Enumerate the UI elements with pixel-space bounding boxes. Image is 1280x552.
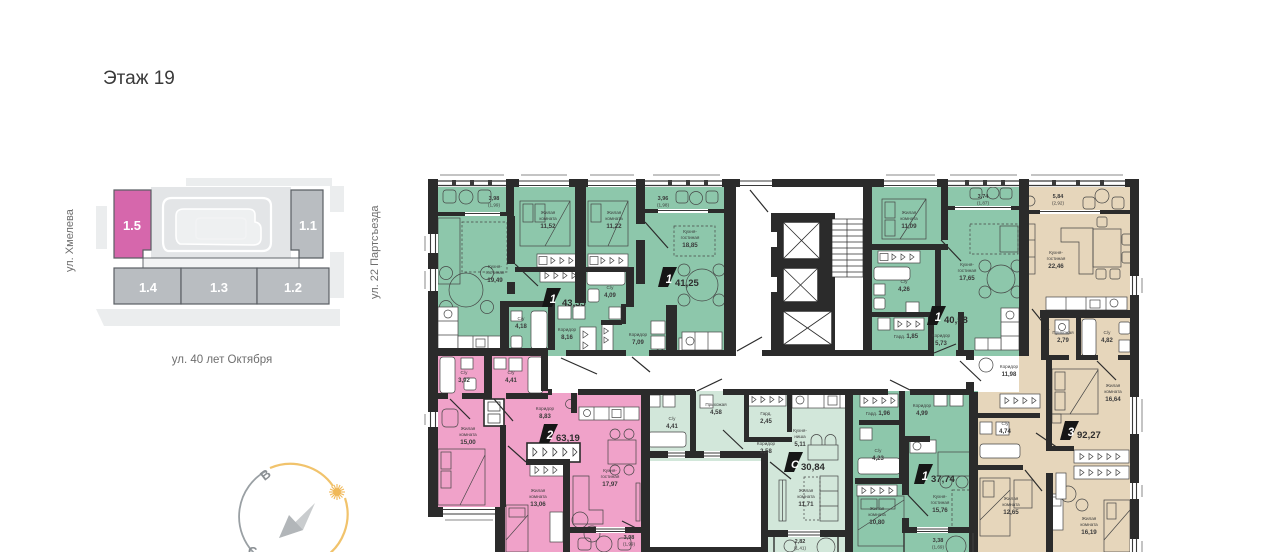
svg-text:2,82: 2,82 [795,539,806,545]
svg-text:3,74: 3,74 [978,194,990,200]
svg-text:37,74: 37,74 [931,474,955,485]
svg-text:Кухня-: Кухня- [488,264,502,269]
svg-text:Прихожая: Прихожая [705,402,727,407]
svg-text:Жилая: Жилая [1082,516,1097,521]
svg-text:Этаж 19: Этаж 19 [103,68,175,89]
svg-text:17,97: 17,97 [602,481,618,488]
svg-text:(1,98): (1,98) [657,203,669,208]
svg-text:41,25: 41,25 [675,278,699,289]
svg-text:8,83: 8,83 [539,414,551,420]
svg-text:Коридор: Коридор [913,403,932,408]
svg-text:С/у: С/у [1002,421,1010,426]
svg-text:1: 1 [935,312,941,324]
svg-text:4,74: 4,74 [999,429,1011,435]
svg-text:ниша: ниша [794,434,806,439]
svg-text:комната: комната [1002,502,1020,507]
svg-text:11,71: 11,71 [798,501,814,508]
svg-text:Коридор: Коридор [536,406,555,411]
svg-text:63,19: 63,19 [556,433,580,444]
svg-text:7,09: 7,09 [632,340,644,346]
svg-text:1: 1 [550,294,556,306]
svg-text:40,58: 40,58 [944,315,968,326]
svg-text:12,65: 12,65 [1003,509,1019,516]
svg-text:1.4: 1.4 [139,280,158,295]
svg-text:(1,99): (1,99) [623,542,635,547]
svg-text:комната: комната [797,494,815,499]
svg-text:Коридор: Коридор [629,332,648,337]
svg-text:комната: комната [529,494,547,499]
svg-text:Кухня-: Кухня- [683,229,697,234]
svg-text:гостиная: гостиная [601,474,620,479]
svg-text:13,06: 13,06 [530,501,546,508]
svg-text:С/у: С/у [461,370,469,375]
svg-text:С/у: С/у [901,279,909,284]
svg-text:19,49: 19,49 [487,277,503,284]
svg-text:3,92: 3,92 [458,378,470,384]
svg-text:3,96: 3,96 [658,196,669,202]
svg-text:комната: комната [1104,389,1122,394]
svg-text:Коридор: Коридор [932,333,951,338]
svg-text:Жилая: Жилая [902,210,917,215]
svg-text:2,45: 2,45 [760,419,772,425]
svg-text:2,79: 2,79 [1057,338,1069,344]
svg-text:ул. 40 лет Октября: ул. 40 лет Октября [172,354,272,366]
svg-text:С/у: С/у [607,285,615,290]
svg-text:комната: комната [459,432,477,437]
svg-text:(1,99): (1,99) [488,203,500,208]
svg-text:15,76: 15,76 [932,507,948,514]
svg-text:30,84: 30,84 [801,462,825,473]
svg-text:Коридор: Коридор [1000,364,1019,369]
svg-text:2: 2 [546,430,554,442]
svg-text:Жилая: Жилая [1004,496,1019,501]
svg-text:3,98: 3,98 [624,535,635,541]
svg-text:18,85: 18,85 [682,242,698,249]
svg-text:3,98: 3,98 [489,196,500,202]
svg-text:10,80: 10,80 [869,519,885,526]
svg-text:гостиная: гостиная [681,235,700,240]
svg-text:4,23: 4,23 [872,456,884,462]
svg-text:1.1: 1.1 [299,218,317,233]
svg-text:Жилая: Жилая [799,488,814,493]
svg-text:комната: комната [539,216,557,221]
svg-text:С/у: С/у [1104,330,1112,335]
svg-text:С/у: С/у [508,370,516,375]
svg-text:Жилая: Жилая [461,426,476,431]
svg-text:Коридор: Коридор [757,441,776,446]
svg-text:11,22: 11,22 [606,223,622,230]
svg-text:С/у: С/у [669,416,677,421]
svg-text:15,00: 15,00 [460,439,476,446]
svg-text:Кухня-: Кухня- [793,428,807,433]
svg-text:5,84: 5,84 [1053,194,1065,200]
svg-text:4,58: 4,58 [710,410,722,416]
svg-text:11,09: 11,09 [901,223,917,230]
svg-text:С/у: С/у [518,316,526,321]
svg-text:4,18: 4,18 [515,324,527,330]
svg-text:11,98: 11,98 [1002,372,1017,378]
svg-text:5,11: 5,11 [794,442,806,448]
svg-text:1.5: 1.5 [123,218,141,233]
svg-text:С: С [248,544,258,552]
svg-text:(1,69): (1,69) [932,545,944,550]
svg-text:гостиная: гостиная [931,500,950,505]
svg-text:комната: комната [1080,522,1098,527]
svg-text:43,35: 43,35 [562,298,586,309]
svg-text:Коридор: Коридор [558,327,577,332]
svg-text:Жилая: Жилая [1106,383,1121,388]
svg-text:Кухня-: Кухня- [933,494,947,499]
svg-text:гостиная: гостиная [958,268,977,273]
svg-text:17,65: 17,65 [959,275,975,282]
svg-text:С/у: С/у [875,448,883,453]
svg-text:Жилая: Жилая [531,488,546,493]
svg-text:(2,92): (2,92) [1052,201,1064,206]
svg-text:1: 1 [666,274,672,286]
svg-text:Кухня-: Кухня- [1049,250,1063,255]
svg-text:4,41: 4,41 [666,424,678,430]
svg-text:5,73: 5,73 [935,341,947,347]
svg-text:Кухня-: Кухня- [960,262,974,267]
svg-text:1.3: 1.3 [210,280,228,295]
svg-text:16,64: 16,64 [1105,396,1121,403]
svg-text:гостиная: гостиная [486,270,505,275]
svg-text:Жилая: Жилая [870,506,885,511]
svg-text:3: 3 [1068,427,1075,439]
svg-text:комната: комната [900,216,918,221]
svg-text:22,46: 22,46 [1048,263,1064,270]
svg-text:3,38: 3,38 [933,538,944,544]
svg-text:8,16: 8,16 [561,335,573,341]
svg-text:(1,87): (1,87) [977,201,989,206]
svg-text:Жилая: Жилая [541,210,556,215]
svg-text:С: С [791,459,800,471]
svg-text:1: 1 [922,471,928,483]
svg-text:11,52: 11,52 [540,223,556,230]
svg-text:ул. Хмелева: ул. Хмелева [64,208,76,272]
svg-text:Жилая: Жилая [607,210,622,215]
svg-text:4,26: 4,26 [898,287,910,293]
svg-text:(1,41): (1,41) [794,546,806,551]
svg-text:4,09: 4,09 [604,293,616,299]
svg-text:4,41: 4,41 [505,378,517,384]
svg-text:Гард.: Гард. [760,411,771,416]
svg-text:комната: комната [605,216,623,221]
svg-text:комната: комната [868,512,886,517]
svg-text:16,19: 16,19 [1081,529,1097,536]
svg-text:ул. 22 Партсъезда: ул. 22 Партсъезда [369,205,381,299]
svg-text:гостиная: гостиная [1047,256,1066,261]
svg-text:4,99: 4,99 [916,411,928,417]
svg-text:Кухня-: Кухня- [603,468,617,473]
svg-text:92,27: 92,27 [1077,430,1101,441]
svg-text:Прихожая: Прихожая [1052,330,1074,335]
svg-text:4,82: 4,82 [1101,338,1113,344]
svg-text:1.2: 1.2 [284,280,302,295]
svg-text:2,58: 2,58 [760,449,772,455]
